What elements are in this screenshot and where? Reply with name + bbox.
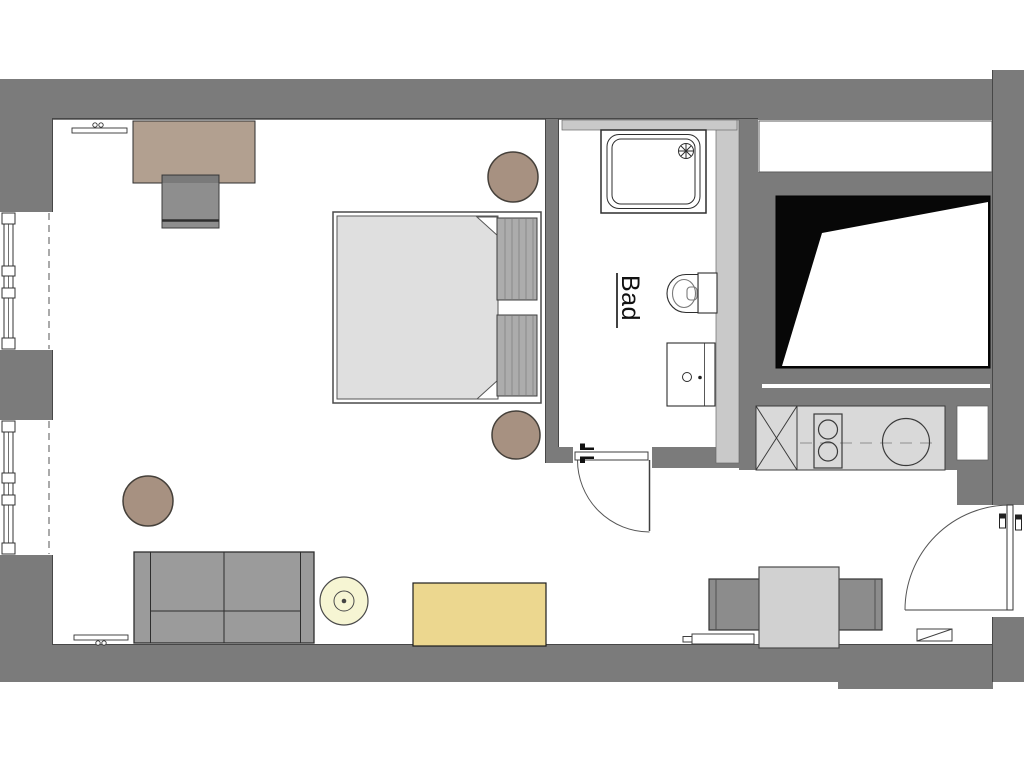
top-wall	[0, 79, 993, 120]
void-shaft-room	[762, 196, 990, 388]
niche-below-wall	[957, 460, 993, 505]
kitchen-niche	[957, 406, 988, 460]
left-wall-mid	[0, 350, 52, 420]
bottom-wall-step	[838, 682, 993, 689]
toilet	[667, 273, 717, 313]
sofa	[134, 552, 314, 643]
desk-chair-overlap-shade	[162, 175, 219, 183]
entrance-door	[905, 505, 1022, 610]
bath-door-stub	[545, 447, 573, 463]
sideboard	[413, 583, 546, 646]
window-upper	[0, 212, 52, 350]
desk-area	[133, 121, 255, 228]
bath-divider-wall	[545, 118, 559, 463]
kitchen	[756, 406, 945, 470]
round-side-table	[320, 577, 368, 625]
bathroom-door	[575, 444, 650, 533]
bathroom-label-text: Bad	[616, 275, 644, 321]
shower-drain	[679, 144, 694, 159]
toilet-tank	[698, 273, 717, 313]
wall-shelf-top	[72, 123, 127, 133]
stool	[492, 411, 540, 459]
installation-shaft-light	[716, 120, 739, 463]
pillow-top	[497, 218, 537, 300]
bath-lintel	[562, 120, 737, 130]
floor-plan: Bad	[0, 0, 1024, 768]
bottom-wall	[0, 645, 993, 682]
wall-shelf-bottom	[74, 635, 128, 645]
desk	[133, 121, 255, 183]
stool	[123, 476, 173, 526]
kitchen-counter	[756, 406, 945, 470]
dining-table	[759, 567, 839, 648]
toilet-bowl	[667, 275, 698, 313]
corridor-strip	[759, 121, 992, 172]
door-leaf	[1007, 505, 1013, 610]
bathroom-sink	[667, 343, 715, 406]
window-lower	[0, 420, 52, 555]
right-wall-lower	[993, 617, 1024, 682]
right-wall-upper	[993, 70, 1024, 505]
pillow-bottom	[497, 315, 537, 396]
left-wall-upper	[0, 79, 52, 212]
door-swing-arc	[578, 460, 650, 532]
void-bottom-gap	[762, 384, 990, 388]
wall-above-kitchen	[758, 388, 993, 406]
bathroom-label: Bad	[616, 273, 644, 328]
floor-plan-svg: Bad	[0, 0, 1024, 768]
radiator	[683, 634, 754, 644]
door-swing-arc	[905, 505, 1010, 610]
double-bed	[333, 212, 541, 403]
kitchen-right-stub	[945, 406, 957, 470]
stool	[488, 152, 538, 202]
shower	[601, 130, 706, 213]
shaft-dark-wall	[739, 120, 758, 470]
doormat	[917, 629, 952, 641]
mattress	[337, 216, 498, 399]
